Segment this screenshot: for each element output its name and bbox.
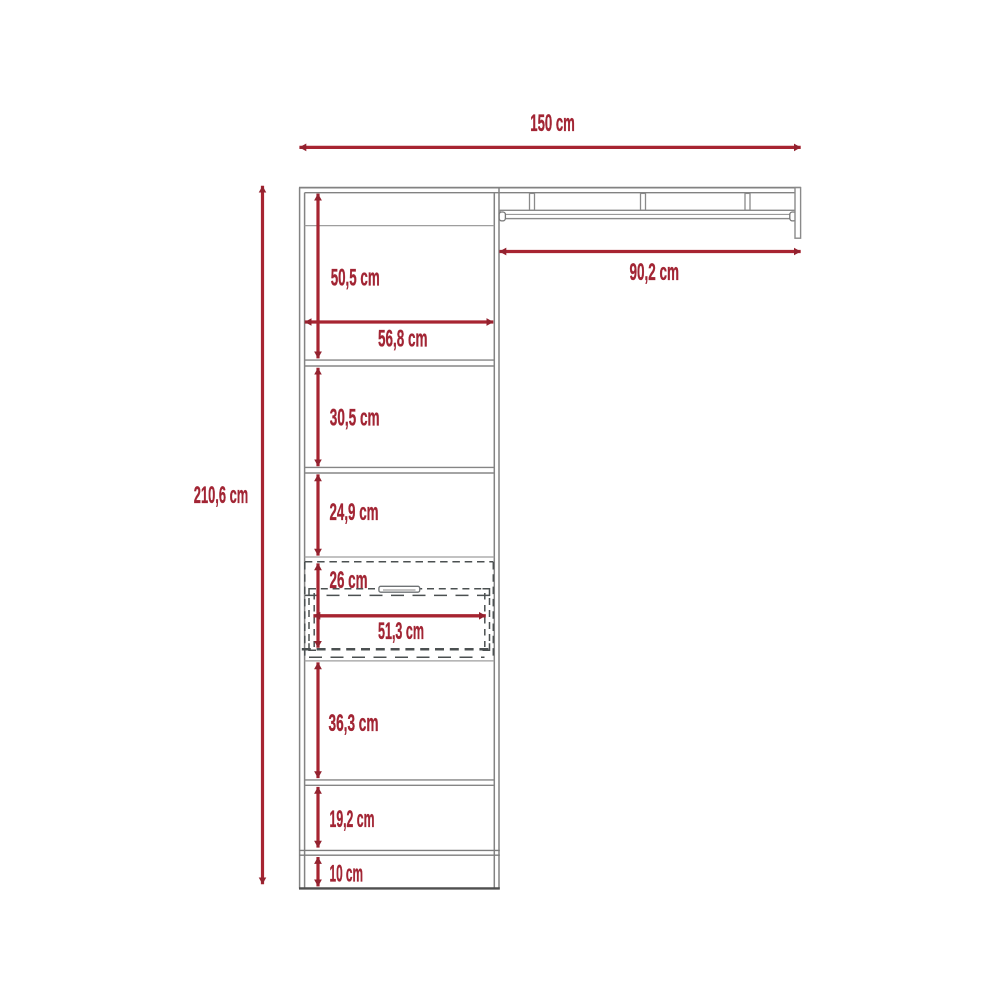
svg-text:50,5 cm: 50,5 cm: [331, 264, 380, 291]
svg-text:26 cm: 26 cm: [330, 567, 368, 594]
svg-text:10 cm: 10 cm: [330, 861, 364, 888]
svg-text:90,2 cm: 90,2 cm: [630, 259, 680, 286]
svg-text:51,3 cm: 51,3 cm: [378, 618, 424, 645]
svg-text:30,5 cm: 30,5 cm: [330, 405, 380, 432]
svg-text:150 cm: 150 cm: [530, 110, 575, 137]
svg-text:210,6 cm: 210,6 cm: [194, 482, 248, 509]
svg-text:24,9 cm: 24,9 cm: [330, 499, 379, 526]
svg-text:36,3 cm: 36,3 cm: [329, 710, 379, 737]
svg-text:19,2 cm: 19,2 cm: [330, 806, 375, 833]
svg-text:56,8 cm: 56,8 cm: [378, 326, 428, 353]
